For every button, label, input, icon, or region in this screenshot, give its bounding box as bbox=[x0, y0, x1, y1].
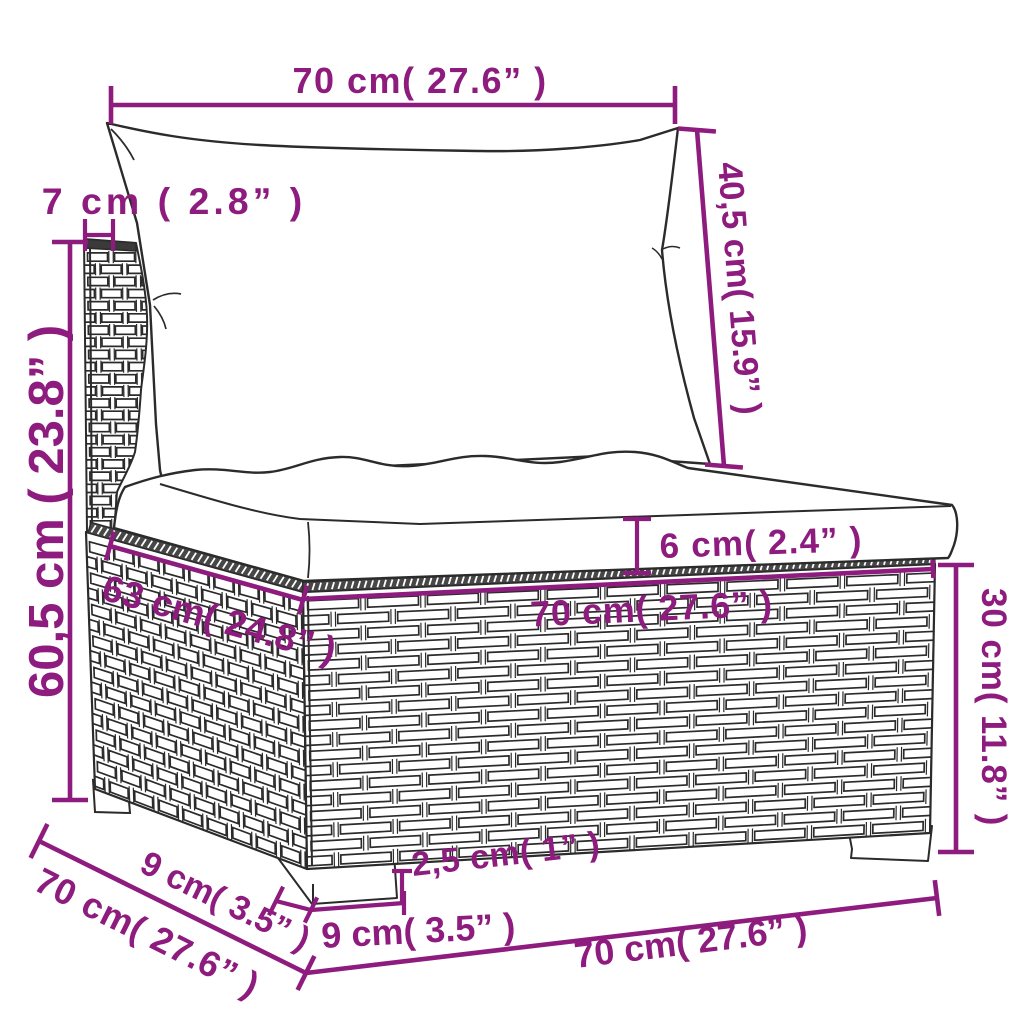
svg-text:30 cm( 11.8” ): 30 cm( 11.8” ) bbox=[974, 588, 1013, 826]
svg-text:7 cm ( 2.8” ): 7 cm ( 2.8” ) bbox=[42, 180, 307, 222]
svg-text:60,5 cm ( 23.8” ): 60,5 cm ( 23.8” ) bbox=[20, 325, 74, 698]
svg-text:70 cm( 27.6” ): 70 cm( 27.6” ) bbox=[292, 60, 547, 101]
svg-text:6 cm( 2.4” ): 6 cm( 2.4” ) bbox=[659, 520, 863, 566]
